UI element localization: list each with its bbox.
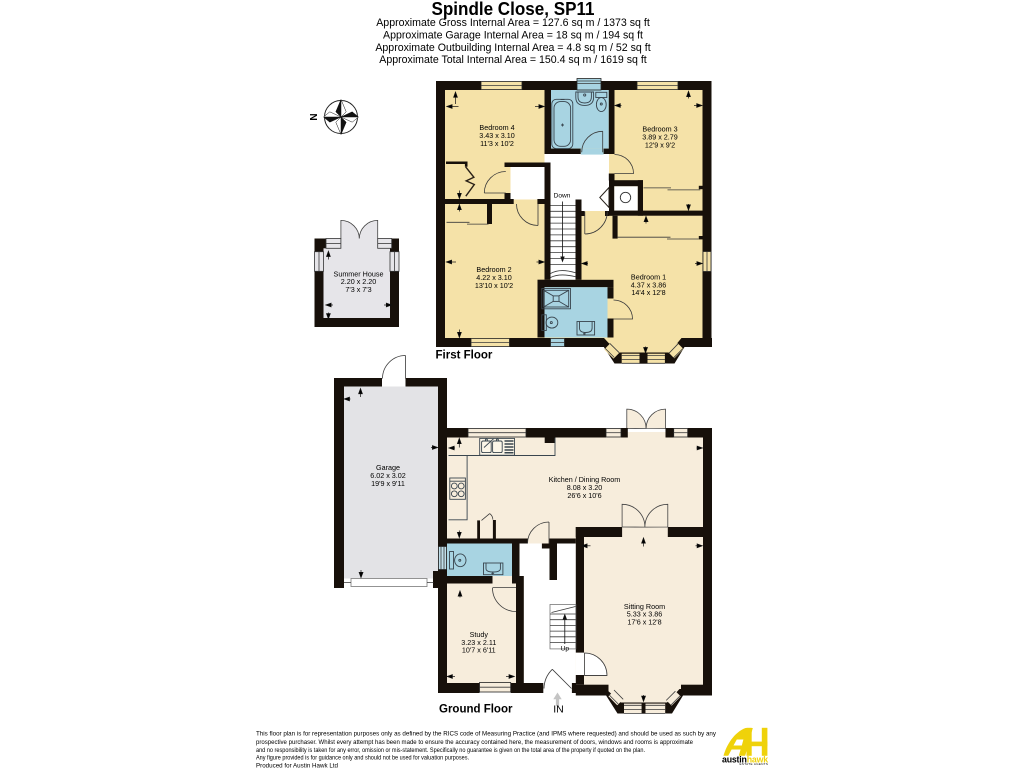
svg-text:and no responsibility is taken: and no responsibility is taken for any e… xyxy=(256,747,645,754)
svg-text:Approximate Gross Internal Are: Approximate Gross Internal Area = 127.6 … xyxy=(376,17,650,29)
svg-text:Approximate Garage Internal Ar: Approximate Garage Internal Area = 18 sq… xyxy=(383,29,643,41)
svg-text:Down: Down xyxy=(554,193,571,200)
svg-text:Any figure provided is for gui: Any figure provided is for guidance only… xyxy=(256,755,469,762)
svg-text:prospective purchaser. Whilst: prospective purchaser. Whilst every atte… xyxy=(256,739,693,746)
svg-text:IN: IN xyxy=(553,704,564,716)
svg-text:ESTATE AGENTS: ESTATE AGENTS xyxy=(740,762,769,766)
svg-text:26'6 x 10'6: 26'6 x 10'6 xyxy=(567,491,601,500)
svg-text:11'3 x 10'2: 11'3 x 10'2 xyxy=(480,139,514,148)
svg-text:19'9 x 9'11: 19'9 x 9'11 xyxy=(371,479,405,488)
svg-text:Approximate Outbuilding Intern: Approximate Outbuilding Internal Area = … xyxy=(375,42,650,54)
svg-text:13'10 x 10'2: 13'10 x 10'2 xyxy=(475,281,513,290)
svg-text:Up: Up xyxy=(561,646,570,653)
svg-text:17'6 x 12'8: 17'6 x 12'8 xyxy=(627,617,661,626)
svg-text:Produced for Austin Hawk Ltd: Produced for Austin Hawk Ltd xyxy=(256,763,338,768)
svg-text:10'7 x 6'11: 10'7 x 6'11 xyxy=(462,646,496,655)
svg-text:First Floor: First Floor xyxy=(436,350,493,362)
svg-text:Ground Floor: Ground Floor xyxy=(439,703,513,715)
svg-text:14'4 x 12'8: 14'4 x 12'8 xyxy=(631,288,665,297)
svg-text:12'9 x 9'2: 12'9 x 9'2 xyxy=(645,141,675,150)
svg-text:Approximate Total Internal Are: Approximate Total Internal Area = 150.4 … xyxy=(379,54,647,66)
svg-text:7'3 x 7'3: 7'3 x 7'3 xyxy=(345,285,371,294)
svg-text:N: N xyxy=(309,113,320,120)
svg-text:This floor plan is for represe: This floor plan is for representation pu… xyxy=(256,731,717,738)
